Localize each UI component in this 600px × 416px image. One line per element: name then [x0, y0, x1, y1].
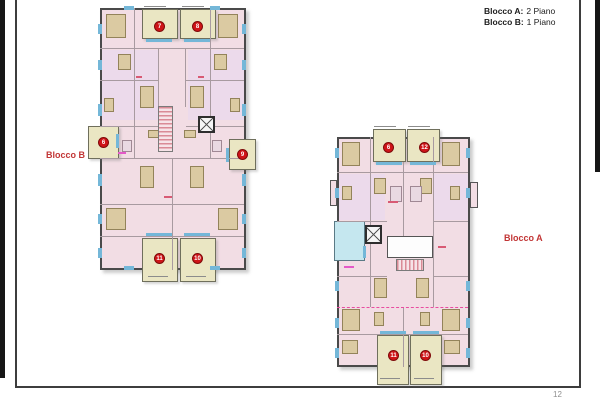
furniture: [390, 186, 402, 202]
furniture-table: [140, 86, 154, 108]
blocco-a-title: Blocco A: [504, 233, 543, 243]
unit-number: 12: [421, 145, 428, 151]
wall-line: [100, 126, 158, 127]
unit-number: 6: [102, 140, 105, 146]
terrace-door: [413, 331, 439, 334]
window-marker: [466, 318, 470, 328]
wall-line: [100, 80, 158, 81]
terrace-door: [410, 162, 436, 165]
furniture: [420, 312, 430, 326]
wall-line: [186, 126, 244, 127]
unit-marker: 6: [98, 137, 109, 148]
wall-line: [403, 307, 404, 367]
annotation-mark: [182, 6, 204, 7]
furniture: [444, 340, 460, 354]
unit-marker: 8: [192, 21, 203, 32]
legend: Blocco A:2 Piano Blocco B:1 Piano: [484, 6, 556, 27]
terrace-door: [146, 39, 172, 42]
stairwell: [396, 259, 424, 271]
annotation-mark: [374, 126, 396, 127]
annotation-mark: [144, 6, 166, 7]
furniture-table: [140, 166, 154, 188]
furniture: [374, 312, 384, 326]
unit-number: 10: [194, 256, 201, 262]
balcony-door: [363, 246, 366, 258]
dimension-mark: [198, 76, 204, 78]
annotation-mark: [186, 276, 206, 277]
furniture-bed: [442, 142, 460, 166]
unit-marker: 10: [192, 253, 203, 264]
balcony-door: [116, 134, 119, 148]
wall-line: [370, 137, 371, 307]
window-marker: [466, 148, 470, 158]
window-marker: [98, 214, 102, 224]
blocco-b-title: Blocco B: [46, 150, 85, 160]
furniture: [342, 340, 358, 354]
dimension-mark: [344, 266, 354, 268]
dimension-mark: [136, 76, 142, 78]
furniture: [104, 98, 114, 112]
window-marker: [98, 248, 102, 258]
window-marker: [335, 281, 339, 291]
unit-marker: 9: [237, 149, 248, 160]
dimension-mark: [438, 246, 446, 248]
section-dash-line: [337, 307, 468, 308]
furniture-table: [374, 278, 387, 298]
terrace-door: [380, 331, 406, 334]
annotation-mark: [414, 378, 434, 379]
legend-line-blocco-a: Blocco A:2 Piano: [484, 6, 556, 17]
wall-line: [186, 80, 244, 81]
window-marker: [242, 60, 246, 70]
balcony-door: [226, 148, 229, 162]
window-marker: [98, 174, 102, 186]
unit-number: 8: [196, 24, 199, 30]
furniture-bed: [218, 14, 238, 38]
annotation-mark: [148, 276, 168, 277]
unit-marker: 11: [154, 253, 165, 264]
legend-blocco-a-value: 2 Piano: [526, 6, 555, 16]
core-room: [387, 236, 433, 258]
unit-number: 11: [156, 256, 162, 262]
unit-marker: 7: [154, 21, 165, 32]
legend-blocco-a-label: Blocco A:: [484, 6, 523, 16]
furniture-bed: [106, 14, 126, 38]
wall-line: [403, 162, 404, 236]
elevator: [198, 116, 215, 133]
furniture: [118, 54, 131, 70]
furniture-bed: [106, 208, 126, 230]
window-marker: [242, 174, 246, 186]
unit-marker: 11: [388, 350, 399, 361]
furniture: [342, 186, 352, 200]
furniture-bed: [342, 142, 360, 166]
window-marker: [242, 248, 246, 258]
legend-blocco-b-value: 1 Piano: [527, 17, 556, 27]
wall-line: [337, 276, 387, 277]
unit-marker: 12: [419, 142, 430, 153]
window-marker: [210, 6, 220, 10]
terrace-door: [184, 233, 210, 236]
annotation-mark: [380, 378, 400, 379]
unit-number: 11: [390, 353, 396, 359]
wall-line: [172, 158, 173, 270]
dimension-mark: [388, 201, 398, 203]
furniture: [450, 186, 460, 200]
window-marker: [466, 281, 470, 291]
terrace-door: [184, 39, 210, 42]
furniture-table: [416, 278, 429, 298]
unit-marker: 10: [420, 350, 431, 361]
window-marker: [124, 266, 134, 270]
window-marker: [242, 104, 246, 116]
furniture: [410, 186, 422, 202]
wall-line: [210, 8, 211, 158]
window-marker: [335, 318, 339, 328]
window-marker: [98, 60, 102, 70]
wall-line: [433, 221, 468, 222]
floor-plan-blocco-a: 6 12 11 10: [330, 126, 486, 388]
furniture-bed: [342, 309, 360, 331]
covered-terrace: [334, 221, 365, 261]
unit-number: 10: [422, 353, 429, 359]
furniture-table: [190, 166, 204, 188]
furniture: [122, 140, 132, 152]
page-edge-left-bar: [0, 0, 5, 378]
window-marker: [210, 266, 220, 270]
furniture: [212, 140, 222, 152]
window-marker: [335, 348, 339, 358]
legend-line-blocco-b: Blocco B:1 Piano: [484, 17, 556, 28]
window-marker: [124, 6, 134, 10]
wall-niche: [470, 182, 478, 208]
wall-line: [433, 276, 468, 277]
stairwell: [158, 106, 173, 152]
window-marker: [466, 348, 470, 358]
annotation-mark: [408, 126, 430, 127]
furniture: [214, 54, 227, 70]
furniture-bed: [218, 208, 238, 230]
furniture: [230, 98, 240, 112]
window-marker: [242, 214, 246, 224]
window-marker: [242, 24, 246, 34]
window-marker: [466, 188, 470, 198]
unit-number: 6: [387, 145, 390, 151]
window-marker: [335, 148, 339, 158]
wall-line: [134, 8, 135, 158]
furniture: [374, 178, 386, 194]
dimension-mark: [118, 152, 126, 154]
elevator: [365, 225, 382, 244]
wall-line: [337, 221, 387, 222]
furniture-bed: [442, 309, 460, 331]
dimension-mark: [164, 196, 172, 198]
wall-line: [185, 48, 186, 107]
legend-blocco-b-label: Blocco B:: [484, 17, 524, 27]
unit-marker: 6: [383, 142, 394, 153]
wall-line: [100, 48, 244, 49]
floor-plan-blocco-b: 7 8 6 9 11 10: [88, 6, 256, 284]
window-marker: [98, 24, 102, 34]
page-edge-right-bar: [595, 0, 600, 172]
window-marker: [98, 104, 102, 116]
unit-number: 7: [158, 24, 161, 30]
furniture-table: [190, 86, 204, 108]
unit-number: 9: [241, 152, 244, 158]
window-marker: [335, 188, 339, 198]
furniture: [184, 130, 196, 138]
drawing-sheet: Blocco A:2 Piano Blocco B:1 Piano Blocco…: [0, 0, 600, 416]
terrace-door: [376, 162, 402, 165]
wall-line: [158, 48, 159, 107]
terrace-door: [146, 233, 172, 236]
page-number: 12: [553, 390, 562, 399]
